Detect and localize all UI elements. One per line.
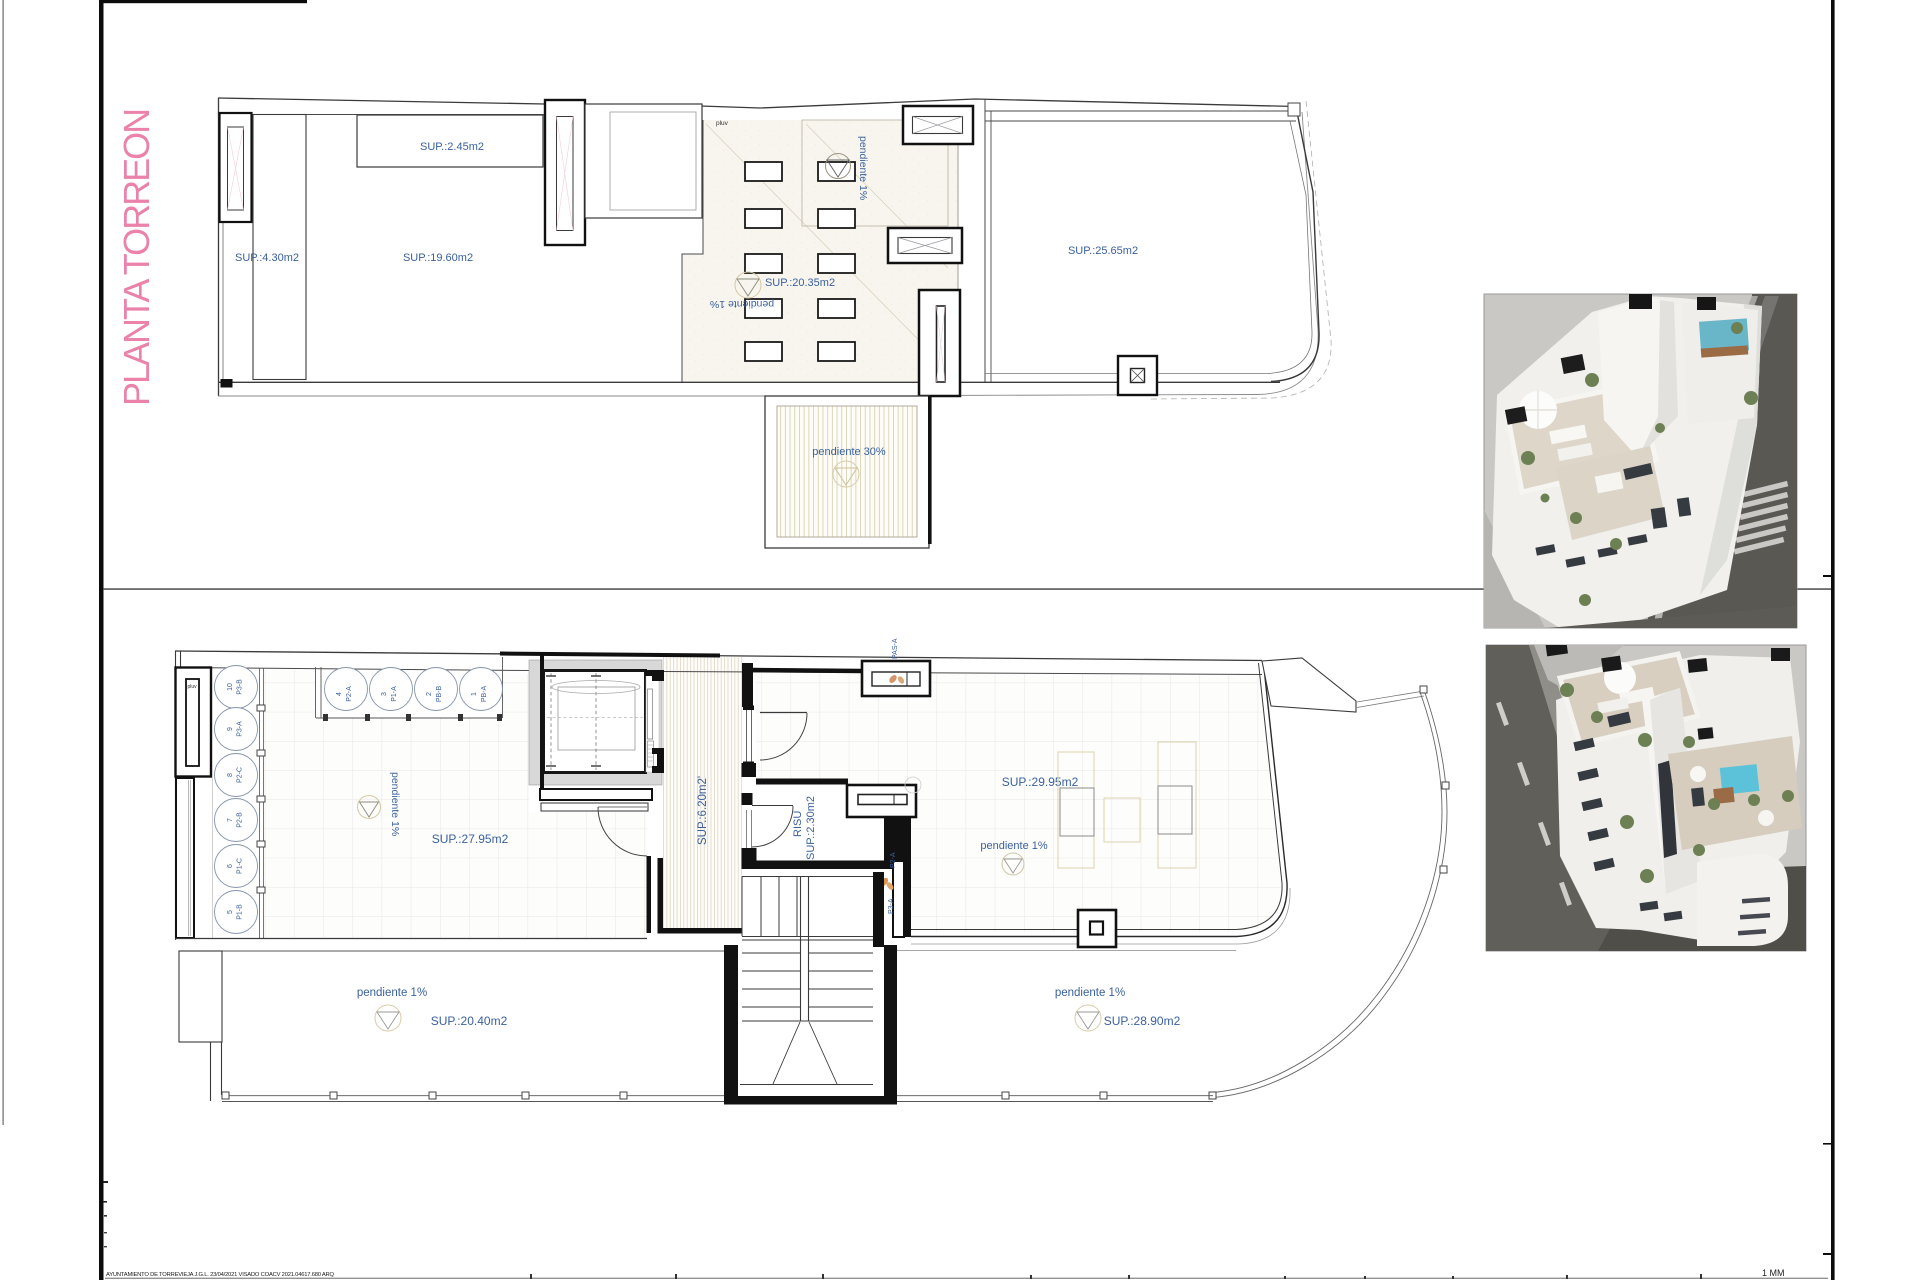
svg-text:P3-B: P3-B [237,679,244,695]
svg-text:5: 5 [227,910,234,914]
svg-text:SUP.:19.60m2: SUP.:19.60m2 [403,252,473,264]
svg-text:3: 3 [381,692,388,696]
svg-text:SUP.:25.65m2: SUP.:25.65m2 [1068,245,1138,257]
svg-text:RISU: RISU [792,811,804,837]
svg-text:SUP.:28.90m2: SUP.:28.90m2 [1104,1014,1181,1028]
svg-text:SUP.:20.40m2: SUP.:20.40m2 [431,1014,508,1028]
svg-text:P3-A: P3-A [888,898,895,914]
svg-text:pendiente 1%: pendiente 1% [389,772,401,836]
svg-text:pendiente 1%: pendiente 1% [1055,987,1125,999]
svg-text:pendiente 1%: pendiente 1% [980,840,1047,852]
svg-text:P2-A: P2-A [890,852,897,868]
svg-text:AYUNTAMIENTO DE TORREVIEJA J.G: AYUNTAMIENTO DE TORREVIEJA J.G.L. 23/04/… [106,1272,335,1278]
svg-text:pluv: pluv [716,120,729,127]
svg-text:PLANTA TORREON: PLANTA TORREON [116,110,157,406]
svg-text:10: 10 [227,683,234,691]
svg-text:P2-C: P2-C [237,767,244,783]
svg-text:P1-A: P1-A [391,686,398,702]
svg-text:pluv: pluv [188,684,198,690]
svg-text:SUP.:2.45m2: SUP.:2.45m2 [420,141,484,153]
svg-text:P1-C: P1-C [237,858,244,874]
svg-text:PB-B: PB-B [436,686,443,703]
svg-text:SUP.:4.30m2: SUP.:4.30m2 [235,252,299,264]
svg-text:8: 8 [227,773,234,777]
svg-text:SUP.:20.35m2: SUP.:20.35m2 [765,277,835,289]
svg-text:1: 1 [471,692,478,696]
svg-text:pendiente 1%: pendiente 1% [857,136,869,200]
svg-text:SUP.:29.95m2: SUP.:29.95m2 [1002,775,1079,789]
svg-text:pendiente 1%: pendiente 1% [710,298,774,310]
svg-text:pendiente 30%: pendiente 30% [812,446,886,458]
svg-text:7: 7 [227,818,234,822]
svg-text:P2-B: P2-B [237,812,244,828]
svg-text:P3-A: P3-A [237,721,244,737]
svg-text:PB-A: PB-A [481,686,488,703]
svg-text:SUP.:27.95m2: SUP.:27.95m2 [432,832,509,846]
svg-text:P2-A: P2-A [346,686,353,702]
svg-text:SUP.:2.30m2: SUP.:2.30m2 [805,796,817,860]
svg-text:4: 4 [336,692,343,696]
svg-text:pendiente 1%: pendiente 1% [357,987,427,999]
svg-text:P1-B: P1-B [237,904,244,920]
svg-text:2: 2 [426,692,433,696]
svg-text:9: 9 [227,727,234,731]
svg-text:SUP.:6.20m2': SUP.:6.20m2' [697,776,709,845]
svg-text:PAS-A: PAS-A [892,638,899,659]
svg-text:1 MM: 1 MM [1762,1268,1785,1278]
svg-text:6: 6 [227,864,234,868]
